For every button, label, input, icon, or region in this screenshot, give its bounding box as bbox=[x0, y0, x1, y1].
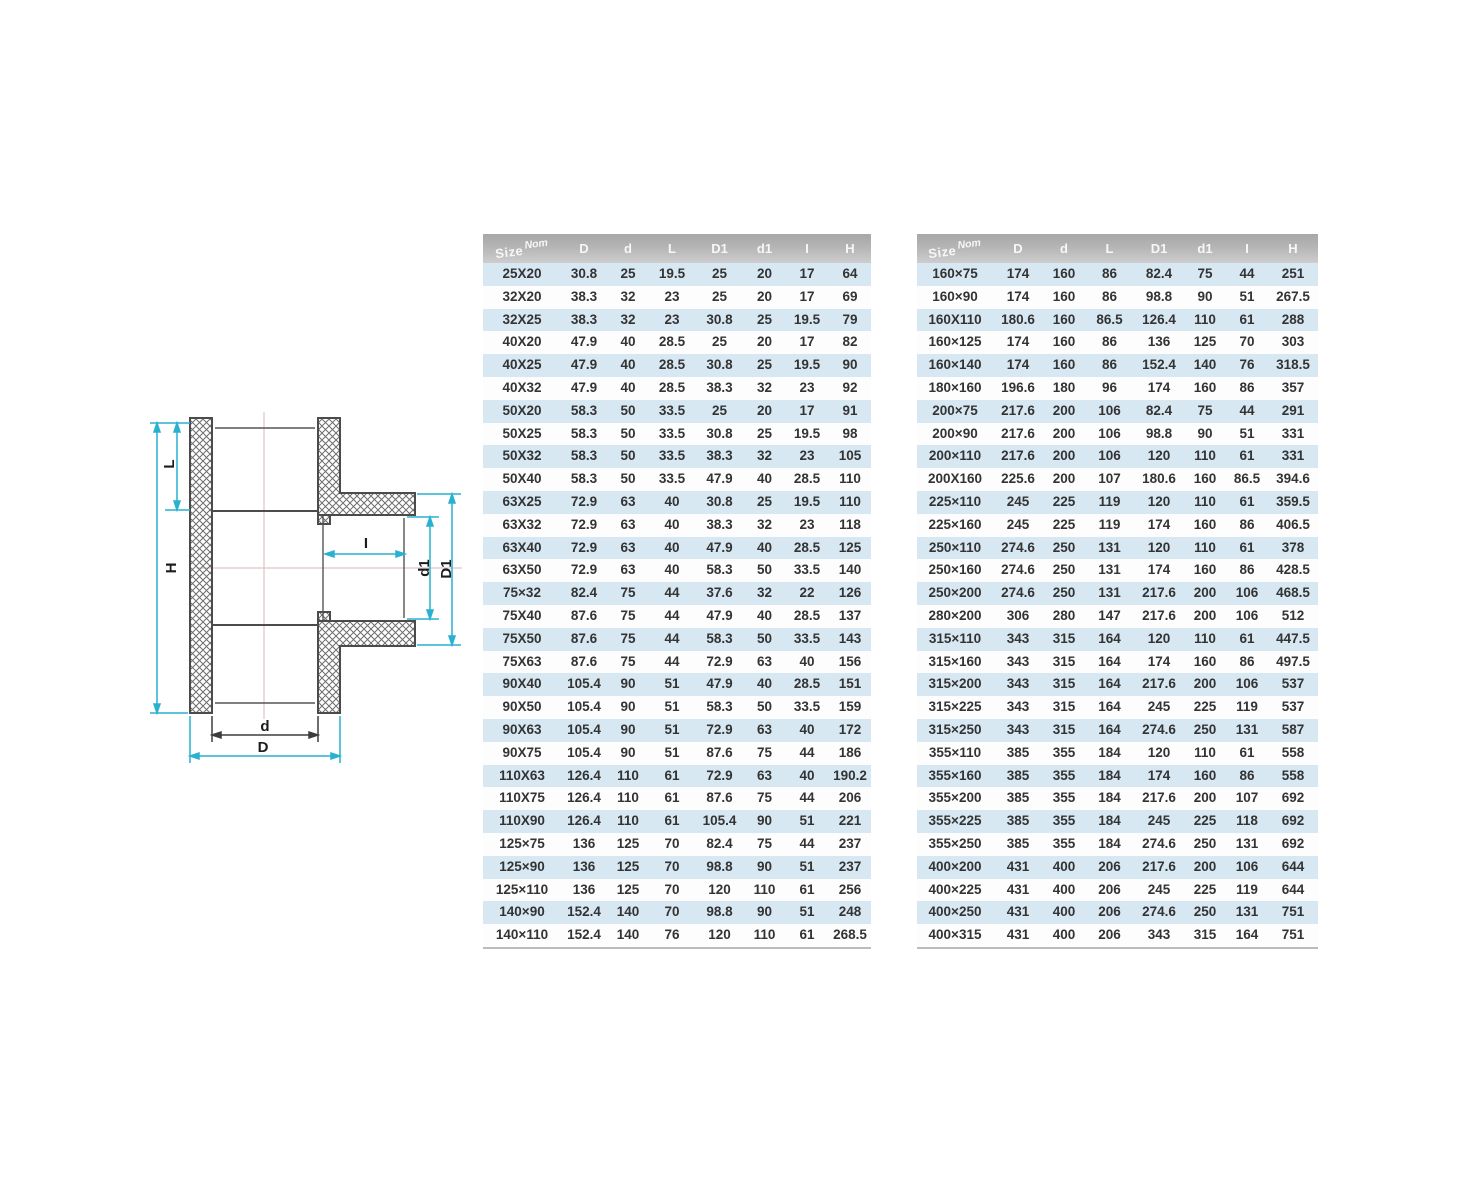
value-cell: 343 bbox=[993, 651, 1043, 674]
value-cell: 75 bbox=[607, 605, 649, 628]
value-cell: 40 bbox=[785, 719, 829, 742]
value-cell: 248 bbox=[829, 901, 871, 924]
value-cell: 86 bbox=[1226, 514, 1268, 537]
table-row: 75×3282.4754437.63222126 bbox=[483, 582, 871, 605]
value-cell: 40 bbox=[744, 537, 785, 560]
value-cell: 58.3 bbox=[561, 423, 607, 446]
value-cell: 61 bbox=[1226, 742, 1268, 765]
value-cell: 19.5 bbox=[785, 354, 829, 377]
col-header-D1: D1 bbox=[695, 234, 744, 263]
value-cell: 200 bbox=[1184, 856, 1226, 879]
value-cell: 245 bbox=[1134, 696, 1184, 719]
size-cell: 400×200 bbox=[917, 856, 993, 879]
value-cell: 86 bbox=[1085, 331, 1134, 354]
value-cell: 40 bbox=[649, 491, 695, 514]
value-cell: 70 bbox=[649, 901, 695, 924]
col-header-D1: D1 bbox=[1134, 234, 1184, 263]
value-cell: 164 bbox=[1085, 651, 1134, 674]
value-cell: 69 bbox=[829, 286, 871, 309]
value-cell: 152.4 bbox=[561, 924, 607, 948]
value-cell: 110 bbox=[829, 468, 871, 491]
table-row: 250×160274.625013117416086428.5 bbox=[917, 559, 1318, 582]
size-cell: 40X20 bbox=[483, 331, 561, 354]
value-cell: 32 bbox=[744, 377, 785, 400]
value-cell: 512 bbox=[1268, 605, 1318, 628]
value-cell: 105 bbox=[829, 445, 871, 468]
value-cell: 186 bbox=[829, 742, 871, 765]
value-cell: 75 bbox=[1184, 263, 1226, 286]
size-cell: 200X160 bbox=[917, 468, 993, 491]
value-cell: 51 bbox=[649, 673, 695, 696]
value-cell: 110 bbox=[607, 810, 649, 833]
value-cell: 75 bbox=[607, 628, 649, 651]
table-row: 125×1101361257012011061256 bbox=[483, 879, 871, 902]
value-cell: 25 bbox=[744, 491, 785, 514]
spec-sheet-page: { "diagram": { "labels": { "L":"L", "H":… bbox=[0, 0, 1467, 1200]
value-cell: 20 bbox=[744, 331, 785, 354]
value-cell: 106 bbox=[1085, 445, 1134, 468]
value-cell: 87.6 bbox=[695, 787, 744, 810]
value-cell: 61 bbox=[1226, 491, 1268, 514]
value-cell: 200 bbox=[1043, 400, 1085, 423]
value-cell: 105.4 bbox=[561, 673, 607, 696]
value-cell: 160 bbox=[1184, 514, 1226, 537]
table-row: 90X50105.4905158.35033.5159 bbox=[483, 696, 871, 719]
value-cell: 30.8 bbox=[695, 423, 744, 446]
value-cell: 70 bbox=[649, 856, 695, 879]
value-cell: 400 bbox=[1043, 856, 1085, 879]
value-cell: 315 bbox=[1043, 673, 1085, 696]
size-cell: 355×250 bbox=[917, 833, 993, 856]
value-cell: 174 bbox=[1134, 514, 1184, 537]
value-cell: 90 bbox=[607, 719, 649, 742]
value-cell: 140 bbox=[829, 559, 871, 582]
value-cell: 47.9 bbox=[561, 354, 607, 377]
value-cell: 19.5 bbox=[785, 491, 829, 514]
value-cell: 61 bbox=[1226, 309, 1268, 332]
table-row: 50X3258.35033.538.33223105 bbox=[483, 445, 871, 468]
value-cell: 32 bbox=[607, 286, 649, 309]
value-cell: 47.9 bbox=[561, 331, 607, 354]
value-cell: 63 bbox=[607, 514, 649, 537]
value-cell: 40 bbox=[649, 537, 695, 560]
value-cell: 343 bbox=[993, 696, 1043, 719]
branch-notch-bottom bbox=[318, 612, 330, 621]
value-cell: 151 bbox=[829, 673, 871, 696]
value-cell: 106 bbox=[1226, 605, 1268, 628]
value-cell: 206 bbox=[1085, 879, 1134, 902]
value-cell: 110 bbox=[1184, 309, 1226, 332]
size-cell: 63X32 bbox=[483, 514, 561, 537]
value-cell: 174 bbox=[993, 331, 1043, 354]
size-cell: 315×200 bbox=[917, 673, 993, 696]
size-cell: 200×110 bbox=[917, 445, 993, 468]
size-cell: 110X63 bbox=[483, 765, 561, 788]
value-cell: 306 bbox=[993, 605, 1043, 628]
value-cell: 431 bbox=[993, 901, 1043, 924]
value-cell: 274.6 bbox=[1134, 833, 1184, 856]
value-cell: 38.3 bbox=[695, 377, 744, 400]
size-cell: 40X25 bbox=[483, 354, 561, 377]
value-cell: 44 bbox=[649, 582, 695, 605]
value-cell: 110 bbox=[744, 879, 785, 902]
value-cell: 61 bbox=[649, 810, 695, 833]
table-row: 110X75126.41106187.67544206 bbox=[483, 787, 871, 810]
value-cell: 274.6 bbox=[993, 582, 1043, 605]
value-cell: 23 bbox=[785, 445, 829, 468]
value-cell: 126.4 bbox=[561, 810, 607, 833]
size-cell: 75X50 bbox=[483, 628, 561, 651]
value-cell: 63 bbox=[607, 491, 649, 514]
value-cell: 106 bbox=[1226, 856, 1268, 879]
size-cell: 400×315 bbox=[917, 924, 993, 948]
table-row: 63X2572.9634030.82519.5110 bbox=[483, 491, 871, 514]
value-cell: 51 bbox=[785, 856, 829, 879]
value-cell: 206 bbox=[1085, 856, 1134, 879]
value-cell: 225 bbox=[1184, 810, 1226, 833]
value-cell: 82.4 bbox=[561, 582, 607, 605]
value-cell: 385 bbox=[993, 742, 1043, 765]
value-cell: 217.6 bbox=[993, 400, 1043, 423]
value-cell: 343 bbox=[993, 719, 1043, 742]
size-header-label: Size bbox=[928, 242, 958, 260]
value-cell: 90 bbox=[829, 354, 871, 377]
value-cell: 120 bbox=[1134, 445, 1184, 468]
value-cell: 82.4 bbox=[1134, 263, 1184, 286]
value-cell: 22 bbox=[785, 582, 829, 605]
col-header-D: D bbox=[993, 234, 1043, 263]
value-cell: 61 bbox=[1226, 537, 1268, 560]
size-cell: 110X90 bbox=[483, 810, 561, 833]
value-cell: 315 bbox=[1043, 628, 1085, 651]
value-cell: 44 bbox=[649, 628, 695, 651]
table-row: 25X2030.82519.525201764 bbox=[483, 263, 871, 286]
size-cell: 355×225 bbox=[917, 810, 993, 833]
size-cell: 25X20 bbox=[483, 263, 561, 286]
value-cell: 75 bbox=[744, 742, 785, 765]
table-row: 250×200274.6250131217.6200106468.5 bbox=[917, 582, 1318, 605]
value-cell: 587 bbox=[1268, 719, 1318, 742]
value-cell: 537 bbox=[1268, 696, 1318, 719]
table-row: 280×200306280147217.6200106512 bbox=[917, 605, 1318, 628]
value-cell: 180.6 bbox=[993, 309, 1043, 332]
value-cell: 355 bbox=[1043, 765, 1085, 788]
size-cell: 40X32 bbox=[483, 377, 561, 400]
value-cell: 51 bbox=[785, 901, 829, 924]
value-cell: 30.8 bbox=[695, 309, 744, 332]
value-cell: 184 bbox=[1085, 810, 1134, 833]
value-cell: 343 bbox=[993, 628, 1043, 651]
value-cell: 110 bbox=[607, 765, 649, 788]
value-cell: 98.8 bbox=[1134, 286, 1184, 309]
value-cell: 86 bbox=[1226, 651, 1268, 674]
value-cell: 25 bbox=[607, 263, 649, 286]
col-header-D: D bbox=[561, 234, 607, 263]
size-cell: 225×110 bbox=[917, 491, 993, 514]
value-cell: 98.8 bbox=[1134, 423, 1184, 446]
value-cell: 140 bbox=[1184, 354, 1226, 377]
value-cell: 90 bbox=[607, 742, 649, 765]
value-cell: 72.9 bbox=[695, 651, 744, 674]
value-cell: 47.9 bbox=[695, 673, 744, 696]
value-cell: 40 bbox=[744, 468, 785, 491]
col-header-I: I bbox=[785, 234, 829, 263]
value-cell: 61 bbox=[785, 924, 829, 948]
value-cell: 118 bbox=[829, 514, 871, 537]
value-cell: 63 bbox=[744, 651, 785, 674]
value-cell: 86 bbox=[1226, 377, 1268, 400]
value-cell: 51 bbox=[785, 810, 829, 833]
value-cell: 125 bbox=[607, 833, 649, 856]
value-cell: 221 bbox=[829, 810, 871, 833]
value-cell: 431 bbox=[993, 856, 1043, 879]
value-cell: 86 bbox=[1085, 263, 1134, 286]
value-cell: 200 bbox=[1043, 423, 1085, 446]
value-cell: 751 bbox=[1268, 901, 1318, 924]
value-cell: 63 bbox=[607, 537, 649, 560]
col-header-d: d bbox=[1043, 234, 1085, 263]
value-cell: 110 bbox=[744, 924, 785, 948]
value-cell: 431 bbox=[993, 879, 1043, 902]
value-cell: 76 bbox=[649, 924, 695, 948]
size-cell: 355×160 bbox=[917, 765, 993, 788]
value-cell: 58.3 bbox=[695, 696, 744, 719]
value-cell: 125 bbox=[607, 856, 649, 879]
value-cell: 245 bbox=[993, 514, 1043, 537]
table-row: 140×110152.41407612011061268.5 bbox=[483, 924, 871, 948]
dimension-table-2: SizeNom D d L D1 d1 I H 160×751741608682… bbox=[917, 234, 1318, 949]
dimension-table-1: SizeNom D d L D1 d1 I H 25X2030.82519.52… bbox=[483, 234, 871, 949]
col-header-I: I bbox=[1226, 234, 1268, 263]
value-cell: 200 bbox=[1043, 445, 1085, 468]
value-cell: 40 bbox=[744, 673, 785, 696]
value-cell: 50 bbox=[744, 559, 785, 582]
value-cell: 131 bbox=[1226, 901, 1268, 924]
value-cell: 200 bbox=[1184, 582, 1226, 605]
value-cell: 110 bbox=[1184, 445, 1226, 468]
value-cell: 28.5 bbox=[785, 673, 829, 696]
value-cell: 355 bbox=[1043, 742, 1085, 765]
value-cell: 126.4 bbox=[561, 765, 607, 788]
size-cell: 90X50 bbox=[483, 696, 561, 719]
value-cell: 428.5 bbox=[1268, 559, 1318, 582]
value-cell: 160 bbox=[1043, 354, 1085, 377]
size-cell: 63X25 bbox=[483, 491, 561, 514]
value-cell: 82 bbox=[829, 331, 871, 354]
value-cell: 98.8 bbox=[695, 856, 744, 879]
value-cell: 751 bbox=[1268, 924, 1318, 948]
value-cell: 87.6 bbox=[561, 628, 607, 651]
value-cell: 38.3 bbox=[561, 286, 607, 309]
value-cell: 23 bbox=[649, 286, 695, 309]
value-cell: 355 bbox=[1043, 787, 1085, 810]
value-cell: 107 bbox=[1226, 787, 1268, 810]
dimension-label-I: I bbox=[364, 535, 368, 552]
value-cell: 33.5 bbox=[649, 445, 695, 468]
value-cell: 184 bbox=[1085, 742, 1134, 765]
size-cell: 110X75 bbox=[483, 787, 561, 810]
col-header-L: L bbox=[1085, 234, 1134, 263]
value-cell: 58.3 bbox=[561, 468, 607, 491]
value-cell: 87.6 bbox=[561, 651, 607, 674]
dimension-label-D: D bbox=[258, 739, 269, 756]
value-cell: 140 bbox=[607, 924, 649, 948]
value-cell: 644 bbox=[1268, 856, 1318, 879]
table-row: 200×75217.620010682.47544291 bbox=[917, 400, 1318, 423]
value-cell: 136 bbox=[1134, 331, 1184, 354]
value-cell: 217.6 bbox=[1134, 673, 1184, 696]
value-cell: 140 bbox=[607, 901, 649, 924]
value-cell: 119 bbox=[1226, 879, 1268, 902]
value-cell: 125 bbox=[829, 537, 871, 560]
value-cell: 72.9 bbox=[561, 491, 607, 514]
value-cell: 61 bbox=[1226, 445, 1268, 468]
value-cell: 152.4 bbox=[1134, 354, 1184, 377]
size-cell: 160X110 bbox=[917, 309, 993, 332]
value-cell: 63 bbox=[607, 559, 649, 582]
value-cell: 75 bbox=[744, 787, 785, 810]
value-cell: 160 bbox=[1043, 309, 1085, 332]
value-cell: 190.2 bbox=[829, 765, 871, 788]
table-row: 200×110217.620010612011061331 bbox=[917, 445, 1318, 468]
value-cell: 315 bbox=[1184, 924, 1226, 948]
value-cell: 160 bbox=[1184, 765, 1226, 788]
value-cell: 385 bbox=[993, 810, 1043, 833]
socket-detail-lines bbox=[215, 428, 404, 703]
value-cell: 40 bbox=[649, 559, 695, 582]
value-cell: 160 bbox=[1184, 559, 1226, 582]
value-cell: 237 bbox=[829, 833, 871, 856]
value-cell: 125 bbox=[1184, 331, 1226, 354]
value-cell: 120 bbox=[695, 879, 744, 902]
size-cell: 140×90 bbox=[483, 901, 561, 924]
value-cell: 160 bbox=[1043, 286, 1085, 309]
value-cell: 47.9 bbox=[561, 377, 607, 400]
value-cell: 40 bbox=[607, 377, 649, 400]
value-cell: 200 bbox=[1184, 605, 1226, 628]
value-cell: 406.5 bbox=[1268, 514, 1318, 537]
table-row: 400×225431400206245225119644 bbox=[917, 879, 1318, 902]
value-cell: 23 bbox=[785, 514, 829, 537]
value-cell: 79 bbox=[829, 309, 871, 332]
size-cell: 250×110 bbox=[917, 537, 993, 560]
value-cell: 118 bbox=[1226, 810, 1268, 833]
value-cell: 28.5 bbox=[785, 605, 829, 628]
value-cell: 200 bbox=[1043, 468, 1085, 491]
col-header-d: d bbox=[607, 234, 649, 263]
value-cell: 692 bbox=[1268, 833, 1318, 856]
value-cell: 82.4 bbox=[695, 833, 744, 856]
value-cell: 256 bbox=[829, 879, 871, 902]
value-cell: 318.5 bbox=[1268, 354, 1318, 377]
value-cell: 61 bbox=[649, 765, 695, 788]
value-cell: 125 bbox=[607, 879, 649, 902]
value-cell: 131 bbox=[1085, 537, 1134, 560]
value-cell: 136 bbox=[561, 833, 607, 856]
value-cell: 86.5 bbox=[1226, 468, 1268, 491]
size-cell: 180×160 bbox=[917, 377, 993, 400]
table-row: 355×200385355184217.6200107692 bbox=[917, 787, 1318, 810]
value-cell: 32 bbox=[744, 445, 785, 468]
value-cell: 280 bbox=[1043, 605, 1085, 628]
value-cell: 250 bbox=[1043, 559, 1085, 582]
value-cell: 126.4 bbox=[561, 787, 607, 810]
size-cell: 90X40 bbox=[483, 673, 561, 696]
value-cell: 44 bbox=[1226, 263, 1268, 286]
value-cell: 274.6 bbox=[1134, 901, 1184, 924]
tee-fitting-diagram: L H I d1 D1 d D bbox=[140, 398, 480, 798]
col-header-d1: d1 bbox=[744, 234, 785, 263]
value-cell: 98.8 bbox=[695, 901, 744, 924]
value-cell: 110 bbox=[1184, 742, 1226, 765]
value-cell: 58.3 bbox=[695, 628, 744, 651]
value-cell: 250 bbox=[1184, 833, 1226, 856]
value-cell: 33.5 bbox=[785, 628, 829, 651]
value-cell: 174 bbox=[1134, 559, 1184, 582]
value-cell: 50 bbox=[607, 445, 649, 468]
table-row: 400×315431400206343315164751 bbox=[917, 924, 1318, 948]
value-cell: 156 bbox=[829, 651, 871, 674]
size-cell: 75X63 bbox=[483, 651, 561, 674]
value-cell: 184 bbox=[1085, 833, 1134, 856]
table-row: 355×11038535518412011061558 bbox=[917, 742, 1318, 765]
value-cell: 40 bbox=[607, 331, 649, 354]
value-cell: 51 bbox=[649, 719, 695, 742]
value-cell: 131 bbox=[1226, 719, 1268, 742]
value-cell: 44 bbox=[785, 742, 829, 765]
value-cell: 359.5 bbox=[1268, 491, 1318, 514]
table-row: 315×16034331516417416086497.5 bbox=[917, 651, 1318, 674]
table-row: 160×901741608698.89051267.5 bbox=[917, 286, 1318, 309]
value-cell: 40 bbox=[785, 651, 829, 674]
value-cell: 357 bbox=[1268, 377, 1318, 400]
value-cell: 315 bbox=[1043, 651, 1085, 674]
size-cell: 63X40 bbox=[483, 537, 561, 560]
size-cell: 125×90 bbox=[483, 856, 561, 879]
size-cell: 315×225 bbox=[917, 696, 993, 719]
branch-notch-top bbox=[318, 515, 330, 524]
size-cell: 50X20 bbox=[483, 400, 561, 423]
value-cell: 72.9 bbox=[695, 765, 744, 788]
value-cell: 245 bbox=[993, 491, 1043, 514]
size-cell: 125×110 bbox=[483, 879, 561, 902]
value-cell: 70 bbox=[1226, 331, 1268, 354]
table-row: 110X63126.41106172.96340190.2 bbox=[483, 765, 871, 788]
table-row: 75X5087.6754458.35033.5143 bbox=[483, 628, 871, 651]
value-cell: 40 bbox=[607, 354, 649, 377]
value-cell: 315 bbox=[1043, 719, 1085, 742]
value-cell: 19.5 bbox=[785, 309, 829, 332]
table-row: 400×250431400206274.6250131751 bbox=[917, 901, 1318, 924]
table-row: 355×225385355184245225118692 bbox=[917, 810, 1318, 833]
value-cell: 174 bbox=[1134, 377, 1184, 400]
table-row: 315×250343315164274.6250131587 bbox=[917, 719, 1318, 742]
size-cell: 250×200 bbox=[917, 582, 993, 605]
value-cell: 64 bbox=[829, 263, 871, 286]
value-cell: 33.5 bbox=[649, 400, 695, 423]
table-row: 160×14017416086152.414076318.5 bbox=[917, 354, 1318, 377]
value-cell: 70 bbox=[649, 833, 695, 856]
value-cell: 184 bbox=[1085, 765, 1134, 788]
value-cell: 497.5 bbox=[1268, 651, 1318, 674]
value-cell: 75 bbox=[1184, 400, 1226, 423]
value-cell: 20 bbox=[744, 286, 785, 309]
size-cell: 32X20 bbox=[483, 286, 561, 309]
value-cell: 217.6 bbox=[993, 423, 1043, 446]
value-cell: 47.9 bbox=[695, 537, 744, 560]
size-cell: 140×110 bbox=[483, 924, 561, 948]
value-cell: 136 bbox=[561, 856, 607, 879]
